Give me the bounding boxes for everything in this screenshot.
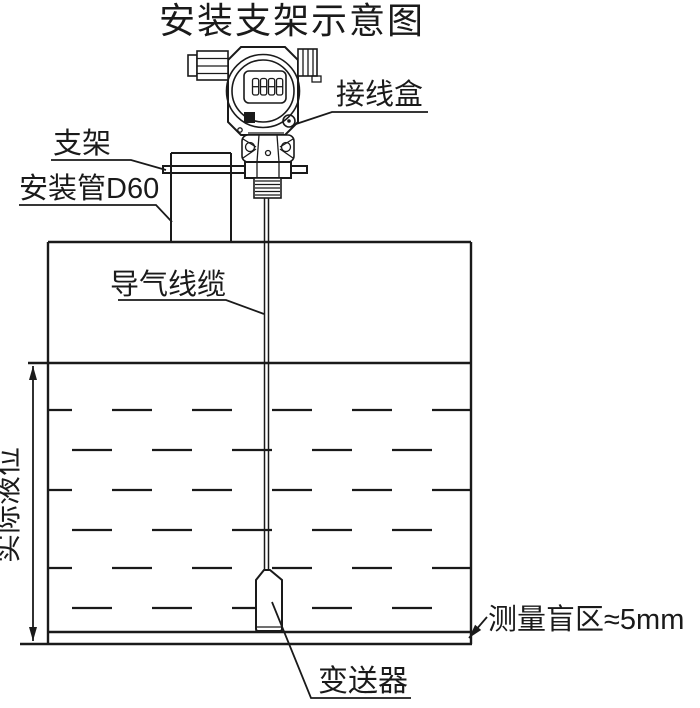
transmitter-label: 变送器 [318,665,408,698]
threaded-fitting [254,178,281,198]
page-title: 安装支架示意图 [159,0,425,41]
bolt-square-icon [244,112,255,123]
air-cable [265,198,269,570]
diagram-canvas: 安装支架示意图 [0,0,700,708]
conduit-block-icon [298,49,321,82]
junction-box-label: 接线盒 [336,78,423,111]
bracket-label: 支架 [53,127,111,160]
callout-junction-box: 接线盒 [296,78,428,124]
hex-nut [245,162,291,178]
actual-level-label: 实际液位 [0,447,24,563]
tank [20,242,472,644]
air-cable-label: 导气线缆 [110,268,226,301]
callout-air-cable: 导气线缆 [110,268,264,314]
blind-zone-label: 测量盲区≈5mm [488,603,684,636]
lcd-display [244,71,286,103]
callout-mounting-pipe: 安装管D60 [19,172,172,222]
cable-gland-icon [188,51,228,80]
level-dimension: 实际液位 [0,366,33,641]
mounting-pipe-label: 安装管D60 [19,172,159,205]
probe-transmitter [256,570,282,631]
head-neck [242,135,294,162]
callout-bracket: 支架 [51,127,166,170]
callout-transmitter: 变送器 [272,602,411,698]
installation-diagram: 安装支架示意图 [0,0,700,708]
callout-blind-zone: 测量盲区≈5mm [469,603,684,638]
